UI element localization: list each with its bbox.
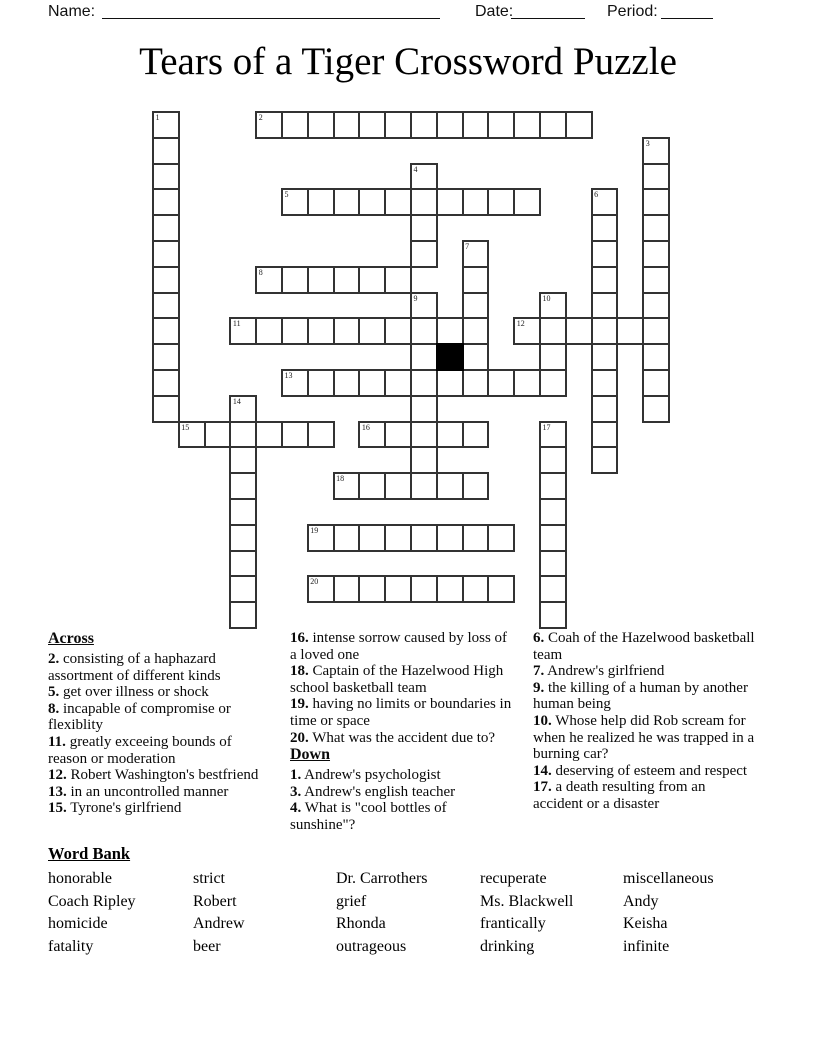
word-bank-item: Dr. Carrothers — [336, 868, 428, 891]
grid-cell[interactable] — [152, 292, 180, 320]
clue-number: 10. — [533, 713, 552, 729]
grid-cell[interactable] — [591, 446, 619, 474]
grid-cell-number: 18 — [336, 474, 344, 483]
across-heading: Across — [48, 630, 268, 647]
grid-cell[interactable] — [152, 163, 180, 191]
word-bank-item: infinite — [623, 936, 714, 959]
grid-cell-number: 8 — [259, 268, 263, 277]
grid-cell[interactable] — [539, 550, 567, 578]
clue-item: 19. having no limits or boundaries in ti… — [290, 696, 514, 729]
grid-cell[interactable] — [384, 524, 412, 552]
grid-cell[interactable] — [152, 214, 180, 242]
word-bank-item: fatality — [48, 936, 136, 959]
grid-cell[interactable] — [642, 214, 670, 242]
grid-cell[interactable] — [642, 266, 670, 294]
grid-cell[interactable] — [384, 369, 412, 397]
grid-cell[interactable] — [539, 111, 567, 139]
grid-cell-number: 2 — [259, 113, 263, 122]
grid-cell[interactable] — [229, 421, 257, 449]
grid-cell[interactable] — [462, 472, 490, 500]
grid-cell[interactable] — [462, 343, 490, 371]
grid-cell-number: 3 — [646, 139, 650, 148]
grid-cell[interactable] — [384, 421, 412, 449]
grid-cell[interactable] — [539, 369, 567, 397]
grid-cell[interactable] — [591, 266, 619, 294]
grid-cell[interactable] — [384, 575, 412, 603]
grid-cell[interactable] — [462, 111, 490, 139]
grid-cell-number: 1 — [156, 113, 160, 122]
grid-cell[interactable] — [436, 111, 464, 139]
grid-cell[interactable]: 4 — [410, 163, 438, 191]
word-bank-heading: Word Bank — [48, 845, 130, 863]
clue-number: 1. — [290, 767, 301, 783]
word-bank-item: miscellaneous — [623, 868, 714, 891]
grid-cell[interactable] — [591, 214, 619, 242]
grid-cell[interactable] — [333, 524, 361, 552]
word-bank-item: Andy — [623, 891, 714, 914]
grid-cell[interactable]: 17 — [539, 421, 567, 449]
grid-cell[interactable] — [358, 575, 386, 603]
grid-cell[interactable] — [307, 188, 335, 216]
grid-cell[interactable] — [410, 343, 438, 371]
grid-cell[interactable] — [642, 188, 670, 216]
clue-item: 6. Coah of the Hazelwood basketball team — [533, 630, 755, 663]
grid-cell[interactable] — [410, 446, 438, 474]
grid-cell[interactable] — [487, 575, 515, 603]
grid-cell[interactable] — [462, 317, 490, 345]
grid-cell-number: 15 — [181, 423, 189, 432]
grid-cell[interactable] — [642, 369, 670, 397]
grid-cell[interactable] — [539, 524, 567, 552]
grid-cell[interactable] — [384, 188, 412, 216]
grid-cell[interactable] — [539, 498, 567, 526]
worksheet-page: Name: Date: Period: Tears of a Tiger Cro… — [0, 0, 816, 1056]
clue-number: 8. — [48, 701, 59, 717]
grid-cell[interactable] — [333, 111, 361, 139]
grid-cell[interactable] — [462, 524, 490, 552]
grid-cell[interactable] — [462, 421, 490, 449]
grid-cell[interactable] — [152, 395, 180, 423]
word-bank-item: beer — [193, 936, 245, 959]
word-bank-item: Andrew — [193, 913, 245, 936]
grid-cell[interactable] — [539, 446, 567, 474]
grid-cell[interactable] — [229, 550, 257, 578]
grid-cell[interactable] — [152, 240, 180, 268]
name-blank[interactable] — [102, 2, 440, 19]
grid-cell[interactable] — [410, 188, 438, 216]
grid-cell[interactable]: 5 — [281, 188, 309, 216]
grid-cell-number: 16 — [362, 423, 370, 432]
down-heading: Down — [290, 746, 514, 763]
grid-cell-number: 5 — [285, 190, 289, 199]
grid-cell[interactable]: 6 — [591, 188, 619, 216]
clue-number: 7. — [533, 663, 544, 679]
grid-cell[interactable]: 20 — [307, 575, 335, 603]
grid-cell-number: 11 — [233, 319, 241, 328]
grid-cell[interactable] — [333, 266, 361, 294]
grid-cell[interactable] — [487, 369, 515, 397]
grid-cell[interactable] — [436, 421, 464, 449]
clue-column: Across2. consisting of a haphazard assor… — [48, 630, 268, 817]
grid-cell[interactable] — [487, 188, 515, 216]
grid-cell[interactable] — [591, 395, 619, 423]
clue-item: 4. What is "cool bottles of sunshine"? — [290, 800, 514, 833]
grid-cell[interactable] — [642, 343, 670, 371]
grid-cell[interactable] — [642, 240, 670, 268]
grid-cell[interactable] — [152, 317, 180, 345]
clue-number: 5. — [48, 684, 59, 700]
grid-cell-number: 13 — [285, 371, 293, 380]
date-blank[interactable] — [511, 2, 585, 19]
clue-item: 11. greatly exceeing bounds of reason or… — [48, 734, 268, 767]
grid-cell[interactable] — [436, 188, 464, 216]
grid-cell[interactable]: 3 — [642, 137, 670, 165]
clue-number: 13. — [48, 784, 67, 800]
grid-cell[interactable] — [384, 266, 412, 294]
clue-number: 18. — [290, 663, 309, 679]
word-bank-item: homicide — [48, 913, 136, 936]
grid-cell[interactable] — [513, 111, 541, 139]
grid-cell[interactable] — [307, 421, 335, 449]
word-bank-item: Coach Ripley — [48, 891, 136, 914]
grid-cell[interactable] — [358, 111, 386, 139]
grid-cell-number: 17 — [543, 423, 551, 432]
grid-cell[interactable] — [410, 395, 438, 423]
grid-cell[interactable] — [255, 317, 283, 345]
grid-cell-number: 12 — [517, 319, 525, 328]
grid-cell[interactable] — [152, 343, 180, 371]
clue-number: 4. — [290, 800, 301, 816]
grid-cell[interactable] — [436, 317, 464, 345]
grid-cell[interactable] — [229, 446, 257, 474]
grid-cell-number: 14 — [233, 397, 241, 406]
grid-cell[interactable] — [333, 317, 361, 345]
word-bank-item: Robert — [193, 891, 245, 914]
grid-cell[interactable] — [410, 421, 438, 449]
grid-cell[interactable] — [462, 266, 490, 294]
grid-cell[interactable] — [539, 472, 567, 500]
clue-number: 6. — [533, 630, 544, 646]
clue-item: 9. the killing of a human by another hum… — [533, 680, 755, 713]
grid-cell[interactable] — [436, 524, 464, 552]
grid-cell[interactable]: 16 — [358, 421, 386, 449]
grid-cell[interactable] — [204, 421, 232, 449]
grid-cell[interactable] — [358, 317, 386, 345]
grid-cell[interactable] — [539, 575, 567, 603]
crossword-grid: 2581112131516181920134679101417 — [152, 111, 670, 629]
grid-cell[interactable] — [539, 317, 567, 345]
word-bank-column: Dr. CarrothersgriefRhondaoutrageous — [336, 868, 428, 958]
grid-cell[interactable]: 2 — [255, 111, 283, 139]
clue-number: 20. — [290, 730, 309, 746]
page-title: Tears of a Tiger Crossword Puzzle — [0, 41, 816, 83]
grid-cell[interactable] — [539, 343, 567, 371]
word-bank-item: grief — [336, 891, 428, 914]
grid-cell[interactable] — [591, 317, 619, 345]
grid-cell[interactable] — [487, 524, 515, 552]
grid-cell[interactable] — [591, 240, 619, 268]
word-bank-column: honorableCoach Ripleyhomicidefatality — [48, 868, 136, 958]
word-bank-item: Rhonda — [336, 913, 428, 936]
grid-cell[interactable] — [384, 472, 412, 500]
period-blank[interactable] — [661, 2, 713, 19]
grid-cell[interactable] — [642, 317, 670, 345]
grid-cell[interactable] — [513, 369, 541, 397]
grid-cell[interactable]: 7 — [462, 240, 490, 268]
grid-cell[interactable] — [591, 421, 619, 449]
grid-cell[interactable] — [616, 317, 644, 345]
grid-cell[interactable] — [358, 266, 386, 294]
grid-cell[interactable] — [410, 472, 438, 500]
grid-cell[interactable] — [358, 188, 386, 216]
word-bank-item: Keisha — [623, 913, 714, 936]
blocked-cell — [436, 343, 464, 371]
clue-number: 17. — [533, 779, 552, 795]
grid-cell[interactable]: 9 — [410, 292, 438, 320]
clue-number: 14. — [533, 763, 552, 779]
grid-cell[interactable] — [384, 317, 412, 345]
grid-cell-number: 6 — [594, 190, 598, 199]
name-label: Name: — [48, 3, 95, 21]
grid-cell[interactable] — [384, 111, 412, 139]
grid-cell[interactable] — [281, 421, 309, 449]
grid-cell-number: 10 — [543, 294, 551, 303]
grid-cell[interactable] — [307, 266, 335, 294]
grid-cell[interactable] — [255, 421, 283, 449]
grid-cell[interactable] — [642, 292, 670, 320]
clue-number: 11. — [48, 734, 66, 750]
grid-cell[interactable] — [229, 601, 257, 629]
grid-cell[interactable] — [410, 524, 438, 552]
clue-item: 17. a death resulting from an accident o… — [533, 779, 755, 812]
grid-cell[interactable] — [513, 188, 541, 216]
word-bank-item: recuperate — [480, 868, 573, 891]
clue-item: 5. get over illness or shock — [48, 684, 268, 701]
grid-cell[interactable] — [591, 292, 619, 320]
grid-cell[interactable] — [487, 111, 515, 139]
clue-item: 15. Tyrone's girlfriend — [48, 800, 268, 817]
grid-cell[interactable] — [229, 524, 257, 552]
grid-cell[interactable] — [462, 188, 490, 216]
grid-cell[interactable] — [642, 163, 670, 191]
clue-number: 3. — [290, 784, 301, 800]
grid-cell[interactable] — [642, 395, 670, 423]
clue-number: 19. — [290, 696, 309, 712]
grid-cell[interactable]: 19 — [307, 524, 335, 552]
grid-cell[interactable] — [436, 369, 464, 397]
grid-cell[interactable] — [436, 575, 464, 603]
grid-cell[interactable] — [565, 317, 593, 345]
grid-cell[interactable] — [410, 575, 438, 603]
word-bank-item: frantically — [480, 913, 573, 936]
grid-cell[interactable] — [307, 111, 335, 139]
grid-cell[interactable]: 11 — [229, 317, 257, 345]
clue-item: 2. consisting of a haphazard assortment … — [48, 651, 268, 684]
clue-item: 1. Andrew's psychologist — [290, 767, 514, 784]
grid-cell[interactable]: 12 — [513, 317, 541, 345]
grid-cell[interactable] — [462, 292, 490, 320]
grid-cell[interactable] — [410, 317, 438, 345]
clue-item: 14. deserving of esteem and respect — [533, 763, 755, 780]
grid-cell[interactable] — [152, 188, 180, 216]
grid-cell[interactable] — [410, 240, 438, 268]
grid-cell[interactable]: 18 — [333, 472, 361, 500]
clue-column: 6. Coah of the Hazelwood basketball team… — [533, 630, 755, 813]
grid-cell[interactable] — [281, 266, 309, 294]
grid-cell[interactable] — [152, 137, 180, 165]
clue-item: 13. in an uncontrolled manner — [48, 784, 268, 801]
clue-number: 12. — [48, 767, 67, 783]
grid-cell[interactable] — [410, 369, 438, 397]
grid-cell[interactable] — [410, 111, 438, 139]
clue-item: 10. Whose help did Rob scream for when h… — [533, 713, 755, 763]
grid-cell[interactable] — [358, 524, 386, 552]
grid-cell[interactable] — [333, 369, 361, 397]
period-label: Period: — [607, 3, 658, 21]
clue-number: 2. — [48, 651, 59, 667]
word-bank-column: recuperateMs. Blackwellfranticallydrinki… — [480, 868, 573, 958]
grid-cell[interactable] — [565, 111, 593, 139]
grid-cell[interactable] — [436, 472, 464, 500]
grid-cell-number: 20 — [310, 577, 318, 586]
grid-cell-number: 19 — [310, 526, 318, 535]
word-bank-item: Ms. Blackwell — [480, 891, 573, 914]
grid-cell[interactable] — [462, 575, 490, 603]
word-bank-column: miscellaneousAndyKeishainfinite — [623, 868, 714, 958]
grid-cell[interactable]: 1 — [152, 111, 180, 139]
grid-cell[interactable] — [462, 369, 490, 397]
clue-item: 8. incapable of compromise or flexiblity — [48, 701, 268, 734]
clue-item: 18. Captain of the Hazelwood High school… — [290, 663, 514, 696]
word-bank-column: strictRobertAndrewbeer — [193, 868, 245, 958]
grid-cell-number: 9 — [414, 294, 418, 303]
grid-cell[interactable] — [229, 575, 257, 603]
grid-cell[interactable] — [410, 214, 438, 242]
clue-column: 16. intense sorrow caused by loss of a l… — [290, 630, 514, 834]
grid-cell[interactable] — [281, 111, 309, 139]
grid-cell[interactable] — [358, 472, 386, 500]
grid-cell[interactable]: 8 — [255, 266, 283, 294]
grid-cell[interactable] — [307, 369, 335, 397]
grid-cell[interactable] — [229, 472, 257, 500]
grid-cell[interactable]: 10 — [539, 292, 567, 320]
date-label: Date: — [475, 3, 513, 21]
grid-cell[interactable] — [307, 317, 335, 345]
grid-cell[interactable] — [152, 369, 180, 397]
clue-number: 15. — [48, 800, 67, 816]
clue-item: 7. Andrew's girlfriend — [533, 663, 755, 680]
grid-cell-number: 4 — [414, 165, 418, 174]
word-bank-item: drinking — [480, 936, 573, 959]
grid-cell[interactable] — [358, 369, 386, 397]
grid-cell[interactable] — [539, 601, 567, 629]
grid-cell[interactable] — [152, 266, 180, 294]
clue-item: 16. intense sorrow caused by loss of a l… — [290, 630, 514, 663]
word-bank-item: outrageous — [336, 936, 428, 959]
grid-cell[interactable] — [591, 369, 619, 397]
clue-item: 12. Robert Washington's bestfriend — [48, 767, 268, 784]
clue-number: 16. — [290, 630, 309, 646]
grid-cell-number: 7 — [465, 242, 469, 251]
clue-number: 9. — [533, 680, 544, 696]
word-bank-item: honorable — [48, 868, 136, 891]
grid-cell[interactable]: 14 — [229, 395, 257, 423]
grid-cell[interactable] — [281, 317, 309, 345]
clue-item: 20. What was the accident due to? — [290, 730, 514, 747]
word-bank-item: strict — [193, 868, 245, 891]
grid-cell[interactable] — [333, 575, 361, 603]
grid-cell[interactable] — [333, 188, 361, 216]
grid-cell[interactable] — [591, 343, 619, 371]
grid-cell[interactable]: 13 — [281, 369, 309, 397]
clue-item: 3. Andrew's english teacher — [290, 784, 514, 801]
grid-cell[interactable]: 15 — [178, 421, 206, 449]
grid-cell[interactable] — [229, 498, 257, 526]
